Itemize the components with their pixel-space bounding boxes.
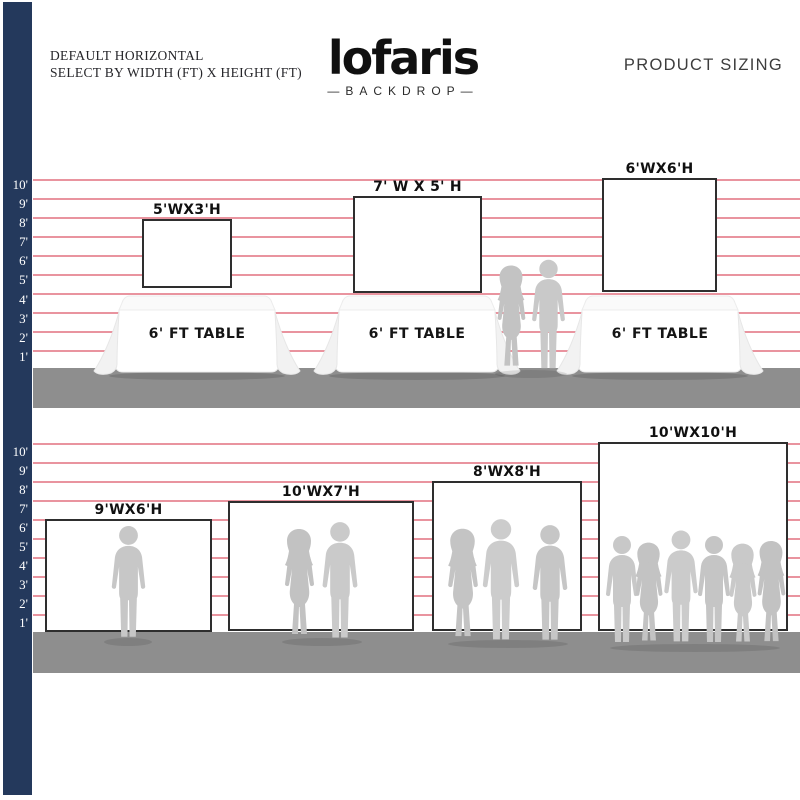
ruler-label: 9' xyxy=(3,197,28,211)
group-silhouette xyxy=(600,528,790,654)
backdrop-size-label: 7' W X 5' H xyxy=(295,179,540,195)
two-person-silhouette xyxy=(274,516,370,648)
product-sizing-infographic: DEFAULT HORIZONTAL SELECT BY WIDTH (FT) … xyxy=(0,0,800,800)
ruler-label: 9' xyxy=(3,464,28,478)
ruler-label: 8' xyxy=(3,216,28,230)
ruler-label: 7' xyxy=(3,502,28,516)
table-label: 6' FT TABLE xyxy=(555,326,765,342)
backdrop-size-label: 5'WX3'H xyxy=(84,202,290,218)
brand-subtitle: —BACKDROP— xyxy=(283,84,523,98)
ruler-label: 3' xyxy=(3,312,28,326)
ruler-label: 6' xyxy=(3,254,28,268)
single-person-silhouette xyxy=(100,522,156,648)
three-person-silhouette xyxy=(438,514,578,650)
ruler-label: 10' xyxy=(3,178,28,192)
couple-silhouette xyxy=(488,252,574,380)
backdrop-5x3: 5'WX3'H xyxy=(142,219,232,288)
ruler-label: 5' xyxy=(3,273,28,287)
ruler-label: 1' xyxy=(3,616,28,630)
brand-subtitle-text: BACKDROP xyxy=(345,84,460,98)
backdrop-size-label: 10'WX10'H xyxy=(540,425,800,441)
ruler-label: 5' xyxy=(3,540,28,554)
ruler-label: 4' xyxy=(3,559,28,573)
ruler-label: 2' xyxy=(3,597,28,611)
ruler-label: 8' xyxy=(3,483,28,497)
backdrop-7x5: 7' W X 5' H xyxy=(353,196,482,293)
brand-logo: lofaris —BACKDROP— xyxy=(283,33,523,98)
ruler-bar xyxy=(3,2,32,795)
backdrop-6x6: 6'WX6'H xyxy=(602,178,717,292)
size-note-line1: DEFAULT HORIZONTAL xyxy=(50,47,302,64)
ruler-label: 3' xyxy=(3,578,28,592)
size-note-line2: SELECT BY WIDTH (FT) X HEIGHT (FT) xyxy=(50,64,302,81)
backdrop-size-label: 10'WX7'H xyxy=(170,484,472,500)
backdrop-size-label: 6'WX6'H xyxy=(544,161,775,177)
ruler-label: 7' xyxy=(3,235,28,249)
ruler-label: 4' xyxy=(3,293,28,307)
ruler-label: 2' xyxy=(3,331,28,345)
brand-dash-right: — xyxy=(461,84,479,98)
ruler-label: 1' xyxy=(3,350,28,364)
ruler-label: 6' xyxy=(3,521,28,535)
page-title: PRODUCT SIZING xyxy=(624,56,783,75)
brand-dash-left: — xyxy=(327,84,345,98)
ruler-label: 10' xyxy=(3,445,28,459)
size-note: DEFAULT HORIZONTAL SELECT BY WIDTH (FT) … xyxy=(50,47,302,81)
table-label: 6' FT TABLE xyxy=(92,326,302,342)
brand-name: lofaris xyxy=(283,33,523,83)
